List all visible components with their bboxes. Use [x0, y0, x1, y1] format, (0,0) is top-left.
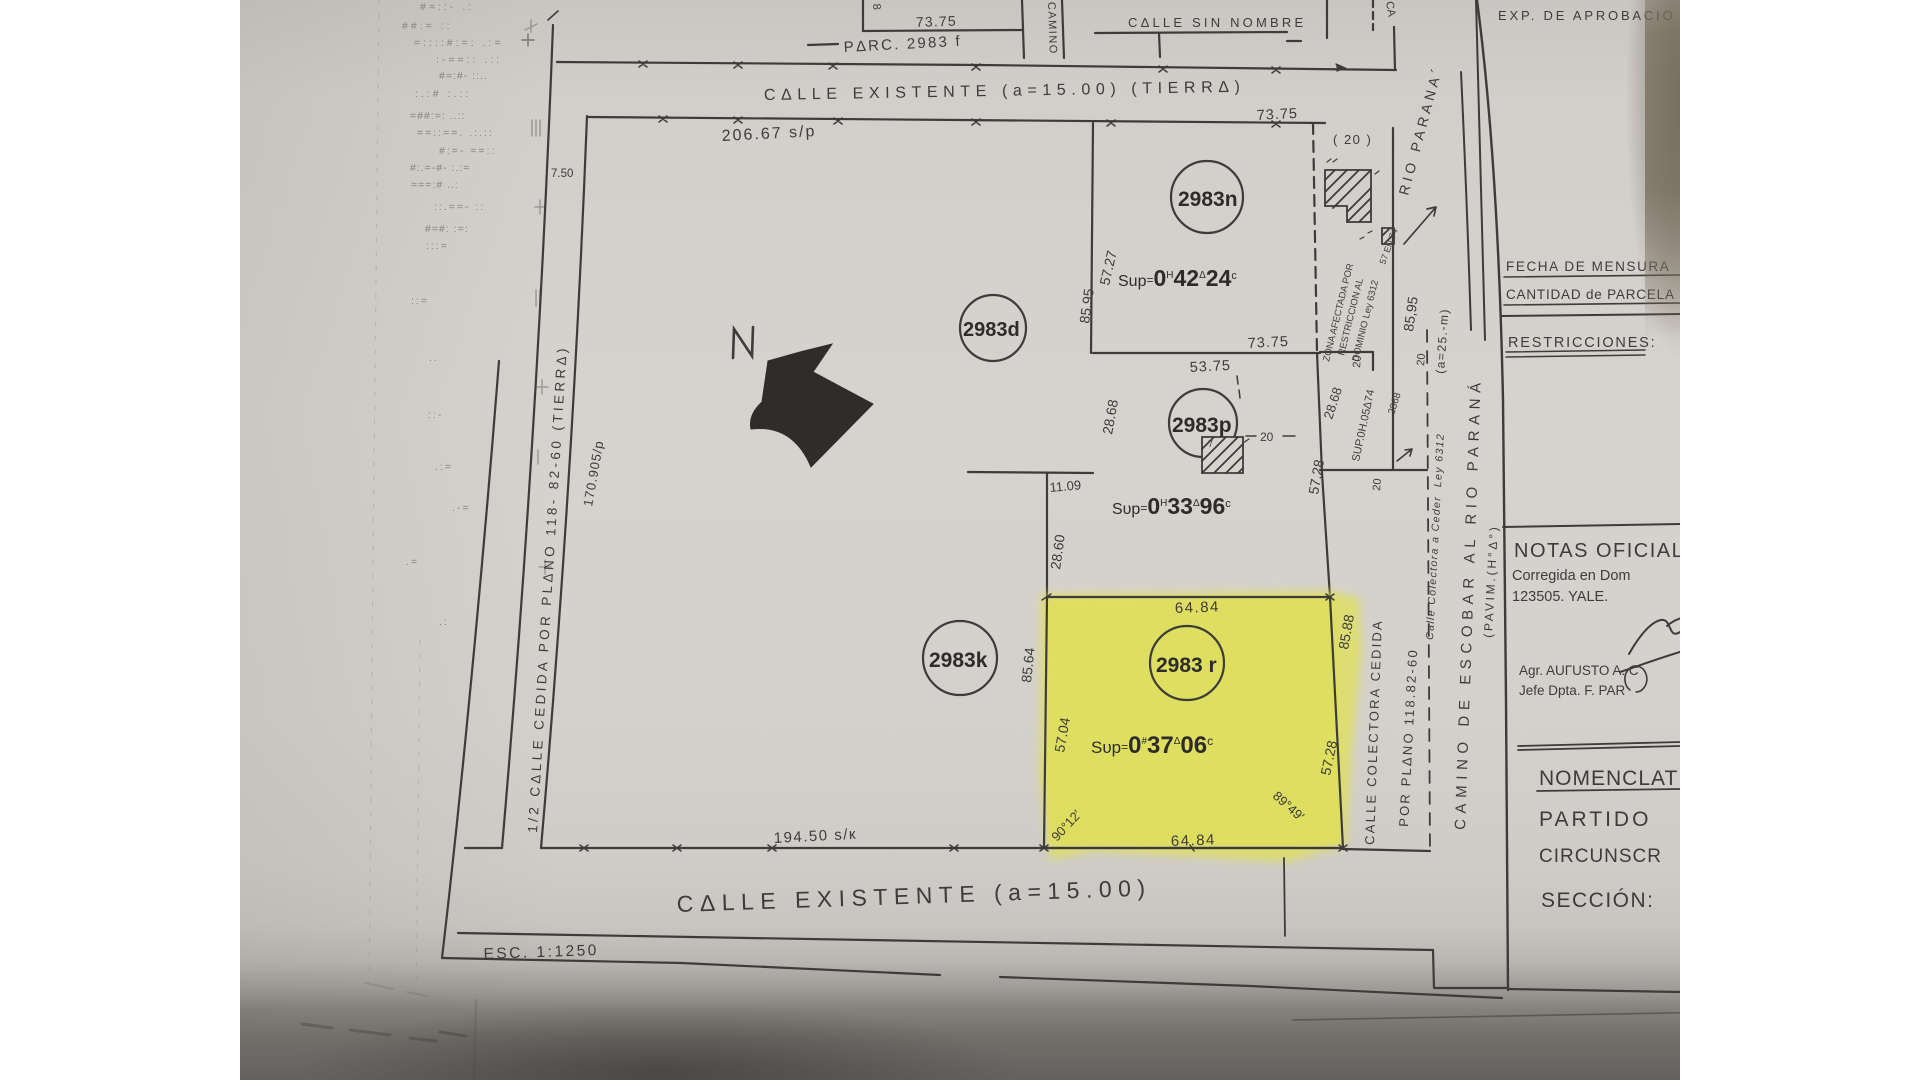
svg-text:20: 20 — [1351, 355, 1364, 368]
svg-text:20: 20 — [1371, 478, 1384, 491]
svg-text:20: 20 — [1415, 353, 1428, 366]
svg-text:RIO PARANA´: RIO PARANA´ — [1395, 63, 1445, 197]
svg-text:73.75: 73.75 — [916, 13, 958, 30]
svg-text:RESTRICCIONES:: RESTRICCIONES: — [1508, 335, 1656, 351]
svg-text:PΔRC. 2983 f: PΔRC. 2983 f — [843, 33, 962, 56]
svg-text:CΔLLE SIN NOMBRE: CΔLLE SIN NOMBRE — [1128, 15, 1306, 30]
svg-text::-==:: .::: :-==:: .:: — [436, 54, 502, 66]
svg-text:#=#: :=:: #=#: :=: — [425, 223, 469, 235]
svg-text:PARTIDO: PARTIDO — [1539, 808, 1651, 831]
svg-text::.:# :.::: :.:# :.:: — [415, 88, 471, 100]
svg-text:2983d: 2983d — [963, 319, 1020, 341]
svg-text:7: 7 — [1208, 439, 1213, 449]
svg-text:.=: .= — [406, 556, 419, 568]
svg-text:NOMENCLAT: NOMENCLAT — [1539, 767, 1678, 790]
svg-text:194.50 s/к: 194.50 s/к — [773, 826, 857, 847]
svg-text:73.75: 73.75 — [1256, 106, 1298, 124]
svg-text:SECCIÓN:: SECCIÓN: — [1541, 889, 1655, 912]
svg-text:170.905/p: 170.905/p — [580, 439, 606, 507]
svg-text:CIRCUNSCR: CIRCUNSCR — [1539, 846, 1662, 867]
svg-text:53.75: 53.75 — [1189, 358, 1231, 376]
svg-text:#=::- .:: #=::- .: — [420, 1, 474, 13]
svg-text:8: 8 — [870, 3, 882, 10]
svg-text:::.==- ::: ::.==- :: — [434, 201, 485, 213]
svg-text:POR PLΔNO 118.82-60: POR PLΔNO 118.82-60 — [1396, 648, 1420, 827]
svg-text:64.84: 64.84 — [1175, 598, 1221, 617]
svg-text:2983n: 2983n — [1178, 188, 1238, 211]
svg-text:..: .. — [429, 352, 439, 364]
svg-text:.:: .: — [439, 616, 449, 628]
svg-text:206.67 s/p: 206.67 s/p — [721, 123, 816, 145]
svg-text:=::::#:=: .:=: =::::#:=: .:= — [414, 37, 504, 49]
svg-text:::-: ::- — [428, 409, 443, 421]
svg-text:CAMINO DE ESCOBAR AL RIO: CAMINO DE ESCOBAR AL RIO PARANÁ — [1452, 377, 1485, 830]
svg-text:::=: ::= — [411, 295, 429, 307]
svg-text:73.75: 73.75 — [1247, 334, 1289, 352]
svg-text:28.68: 28.68 — [1321, 385, 1345, 421]
svg-text:#=:#- ::..: #=:#- ::.. — [439, 70, 488, 82]
svg-text:2983p: 2983p — [1172, 414, 1232, 437]
svg-text:57 EN 74: 57 EN 74 — [1377, 227, 1399, 266]
svg-text:123505. YALE.: 123505. YALE. — [1512, 589, 1608, 605]
svg-text:28.60: 28.60 — [1047, 533, 1068, 570]
svg-text:CA: CA — [1383, 0, 1398, 18]
svg-text:CANTIDAD de PARCELA: CANTIDAD de PARCELA — [1506, 287, 1675, 302]
svg-text:85.95: 85.95 — [1076, 287, 1097, 324]
svg-text:#:.=-#- :.:=: #:.=-#- :.:= — [410, 162, 470, 174]
svg-text:CAMINO: CAMINO — [1045, 2, 1059, 55]
svg-text:(PAVIM.(H°Δ°): (PAVIM.(H°Δ°) — [1481, 524, 1501, 638]
svg-text:#:=- ==::: #:=- ==:: — [439, 145, 496, 157]
svg-text:Corregidа en Dom: Corregidа en Dom — [1512, 568, 1630, 584]
svg-text:7.50: 7.50 — [551, 168, 573, 180]
svg-text:(a=25.-m): (a=25.-m) — [1433, 308, 1452, 375]
svg-text:=##:=: ..::: =##:=: ..:: — [410, 110, 465, 122]
svg-text:11.09: 11.09 — [1049, 477, 1082, 495]
svg-text:28.68: 28.68 — [1099, 398, 1121, 435]
svg-text:EЅC. 1:1250: EЅC. 1:1250 — [483, 942, 599, 963]
svg-text:Sup=0H42Δ24c: Sup=0H42Δ24c — [1118, 265, 1237, 291]
svg-text:CΔLLE EXISTENTE (a=15.00): CΔLLE EXISTENTE (a=15.00) — [676, 874, 1152, 917]
svg-text:Agr. AUГUSTO A. C: Agr. AUГUSTO A. C — [1519, 663, 1639, 678]
svg-text:57.27: 57.27 — [1096, 249, 1120, 287]
svg-text:2983k: 2983k — [929, 649, 988, 672]
svg-text:Sυp=0H33Δ96c: Sυp=0H33Δ96c — [1112, 493, 1231, 519]
svg-text:CΔLLE EXISTENTE (a=15.00) (TIE: CΔLLE EXISTENTE (a=15.00) (TIERRΔ) — [764, 79, 1246, 104]
svg-text:==::==. .:.::: ==::==. .:.:: — [417, 127, 494, 139]
svg-text::::=: :::= — [426, 240, 449, 252]
svg-text:.:=: .:= — [435, 461, 453, 473]
svg-text:NOTAS OFICIALE: NOTAS OFICIALE — [1514, 540, 1680, 562]
svg-text:##:= ::: ##:= :: — [402, 20, 452, 32]
svg-text:CALLE COLECTORA CEDIDA: CALLE COLECTORA CEDIDA — [1362, 619, 1385, 845]
svg-text:2868: 2868 — [1386, 391, 1403, 416]
svg-text:Jefe Dptа. F. PAR: Jefe Dptа. F. PAR — [1519, 683, 1626, 698]
svg-text:85,95: 85,95 — [1400, 295, 1421, 332]
svg-text:===:# ..:: ===:# ..: — [411, 179, 459, 191]
svg-text:( 20 ): ( 20 ) — [1333, 132, 1372, 147]
svg-text:20: 20 — [1260, 430, 1274, 444]
svg-text:FECHA DE MENSURA: FECHA DE MENSURA — [1506, 259, 1670, 274]
svg-text:.-=: .-= — [452, 502, 471, 514]
svg-text:85.64: 85.64 — [1018, 647, 1038, 684]
svg-text:2983 r: 2983 r — [1156, 654, 1217, 677]
svg-text:EXP. DE APROBACIО: EXP. DE APROBACIО — [1498, 8, 1675, 23]
svg-text:SUP.0H.05Δ74: SUP.0H.05Δ74 — [1350, 389, 1377, 463]
